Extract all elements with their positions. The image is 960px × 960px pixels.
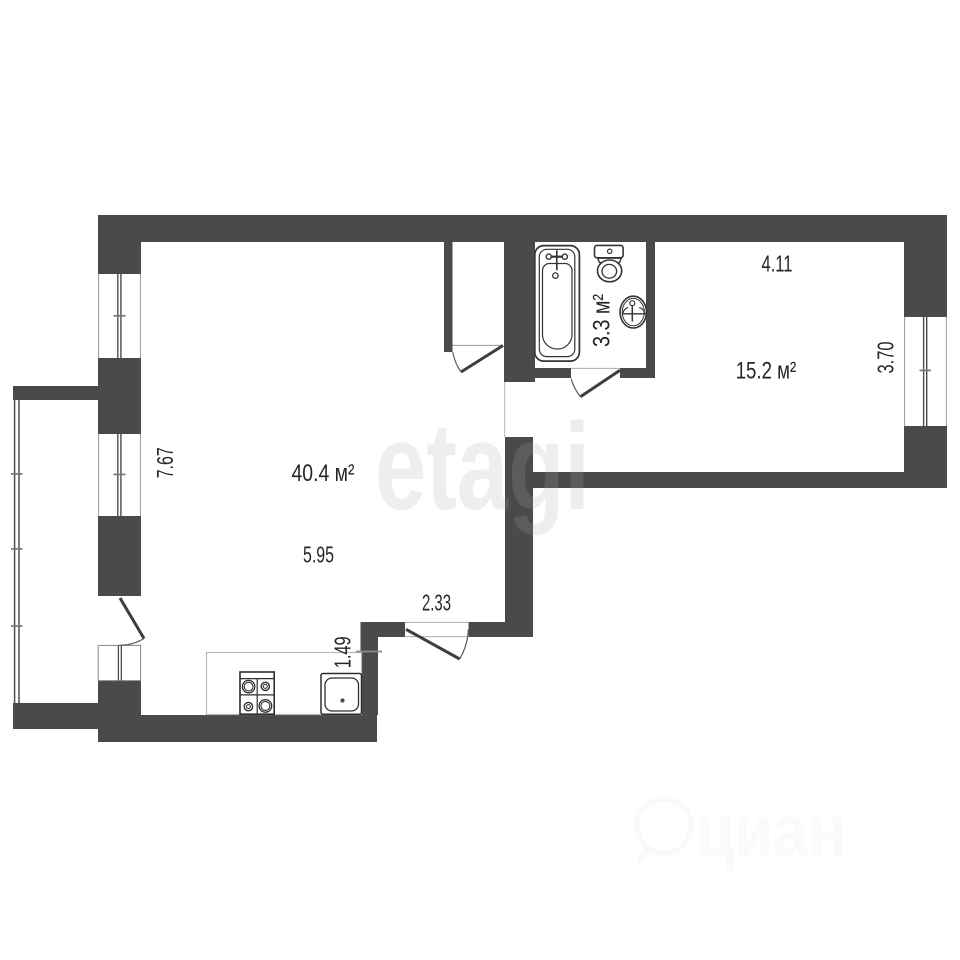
svg-text:1.49: 1.49 bbox=[330, 636, 356, 668]
svg-text:циан: циан bbox=[696, 791, 846, 872]
svg-text:3.70: 3.70 bbox=[872, 342, 898, 374]
svg-text:5.95: 5.95 bbox=[303, 542, 334, 568]
svg-text:15.2 м²: 15.2 м² bbox=[736, 358, 797, 385]
svg-text:2.33: 2.33 bbox=[422, 590, 451, 616]
svg-text:7.67: 7.67 bbox=[152, 447, 178, 478]
svg-text:40.4 м²: 40.4 м² bbox=[292, 460, 355, 487]
svg-text:etagi: etagi bbox=[375, 399, 590, 536]
svg-text:4.11: 4.11 bbox=[762, 250, 793, 276]
svg-text:3.3 м²: 3.3 м² bbox=[589, 294, 616, 347]
